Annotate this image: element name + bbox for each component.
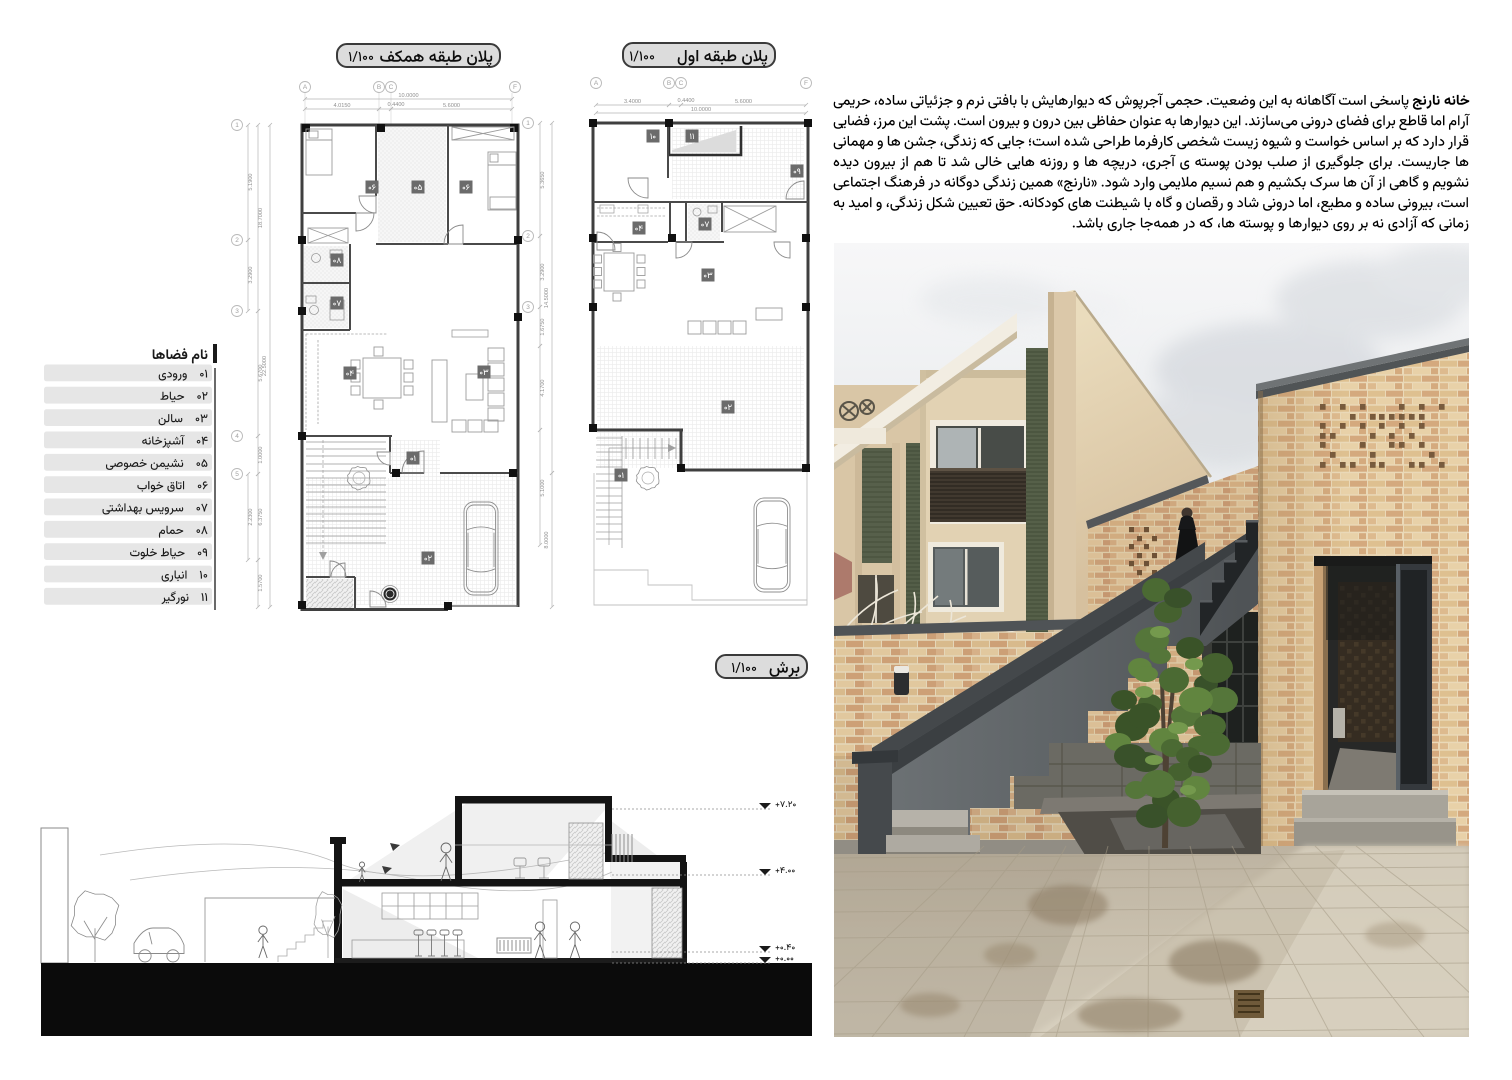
svg-text:A: A (303, 84, 308, 91)
svg-text:5.6000: 5.6000 (735, 99, 752, 105)
svg-text:10.0000: 10.0000 (691, 107, 711, 113)
svg-text:5.1000: 5.1000 (540, 479, 546, 496)
svg-text:5.6700: 5.6700 (258, 364, 264, 381)
svg-text:C: C (679, 80, 684, 87)
svg-text:5.6000: 5.6000 (443, 103, 460, 109)
svg-text:10.0000: 10.0000 (398, 93, 418, 99)
svg-text:2: 2 (526, 233, 530, 240)
svg-text:4: 4 (235, 433, 239, 440)
svg-text:8.0000: 8.0000 (544, 531, 550, 548)
svg-text:3.4000: 3.4000 (624, 99, 641, 105)
svg-text:4.0150: 4.0150 (333, 103, 350, 109)
svg-text:18.7000: 18.7000 (258, 208, 264, 228)
svg-text:0.4400: 0.4400 (677, 98, 694, 104)
svg-text:F: F (513, 84, 517, 91)
svg-text:1: 1 (235, 122, 239, 129)
svg-text:1.6750: 1.6750 (540, 318, 546, 335)
svg-text:14.5000: 14.5000 (544, 288, 550, 308)
svg-text:2: 2 (235, 237, 239, 244)
svg-text:3.2900: 3.2900 (248, 266, 254, 283)
svg-text:6.3750: 6.3750 (258, 508, 264, 525)
svg-text:5: 5 (235, 471, 239, 478)
svg-text:3: 3 (235, 308, 239, 315)
svg-text:A: A (594, 80, 599, 87)
svg-text:B: B (377, 84, 381, 91)
svg-text:C: C (389, 84, 394, 91)
svg-text:1.0000: 1.0000 (258, 446, 264, 463)
svg-text:F: F (804, 80, 808, 87)
svg-text:3.2900: 3.2900 (540, 263, 546, 280)
svg-text:1: 1 (526, 120, 530, 127)
svg-text:B: B (667, 80, 671, 87)
svg-text:5.3650: 5.3650 (540, 171, 546, 188)
svg-text:5.1900: 5.1900 (248, 173, 254, 190)
svg-text:3: 3 (526, 304, 530, 311)
svg-text:2.2300: 2.2300 (248, 508, 254, 525)
svg-text:1.5700: 1.5700 (258, 574, 264, 591)
svg-text:0.4400: 0.4400 (387, 102, 404, 108)
svg-text:4.1700: 4.1700 (540, 379, 546, 396)
